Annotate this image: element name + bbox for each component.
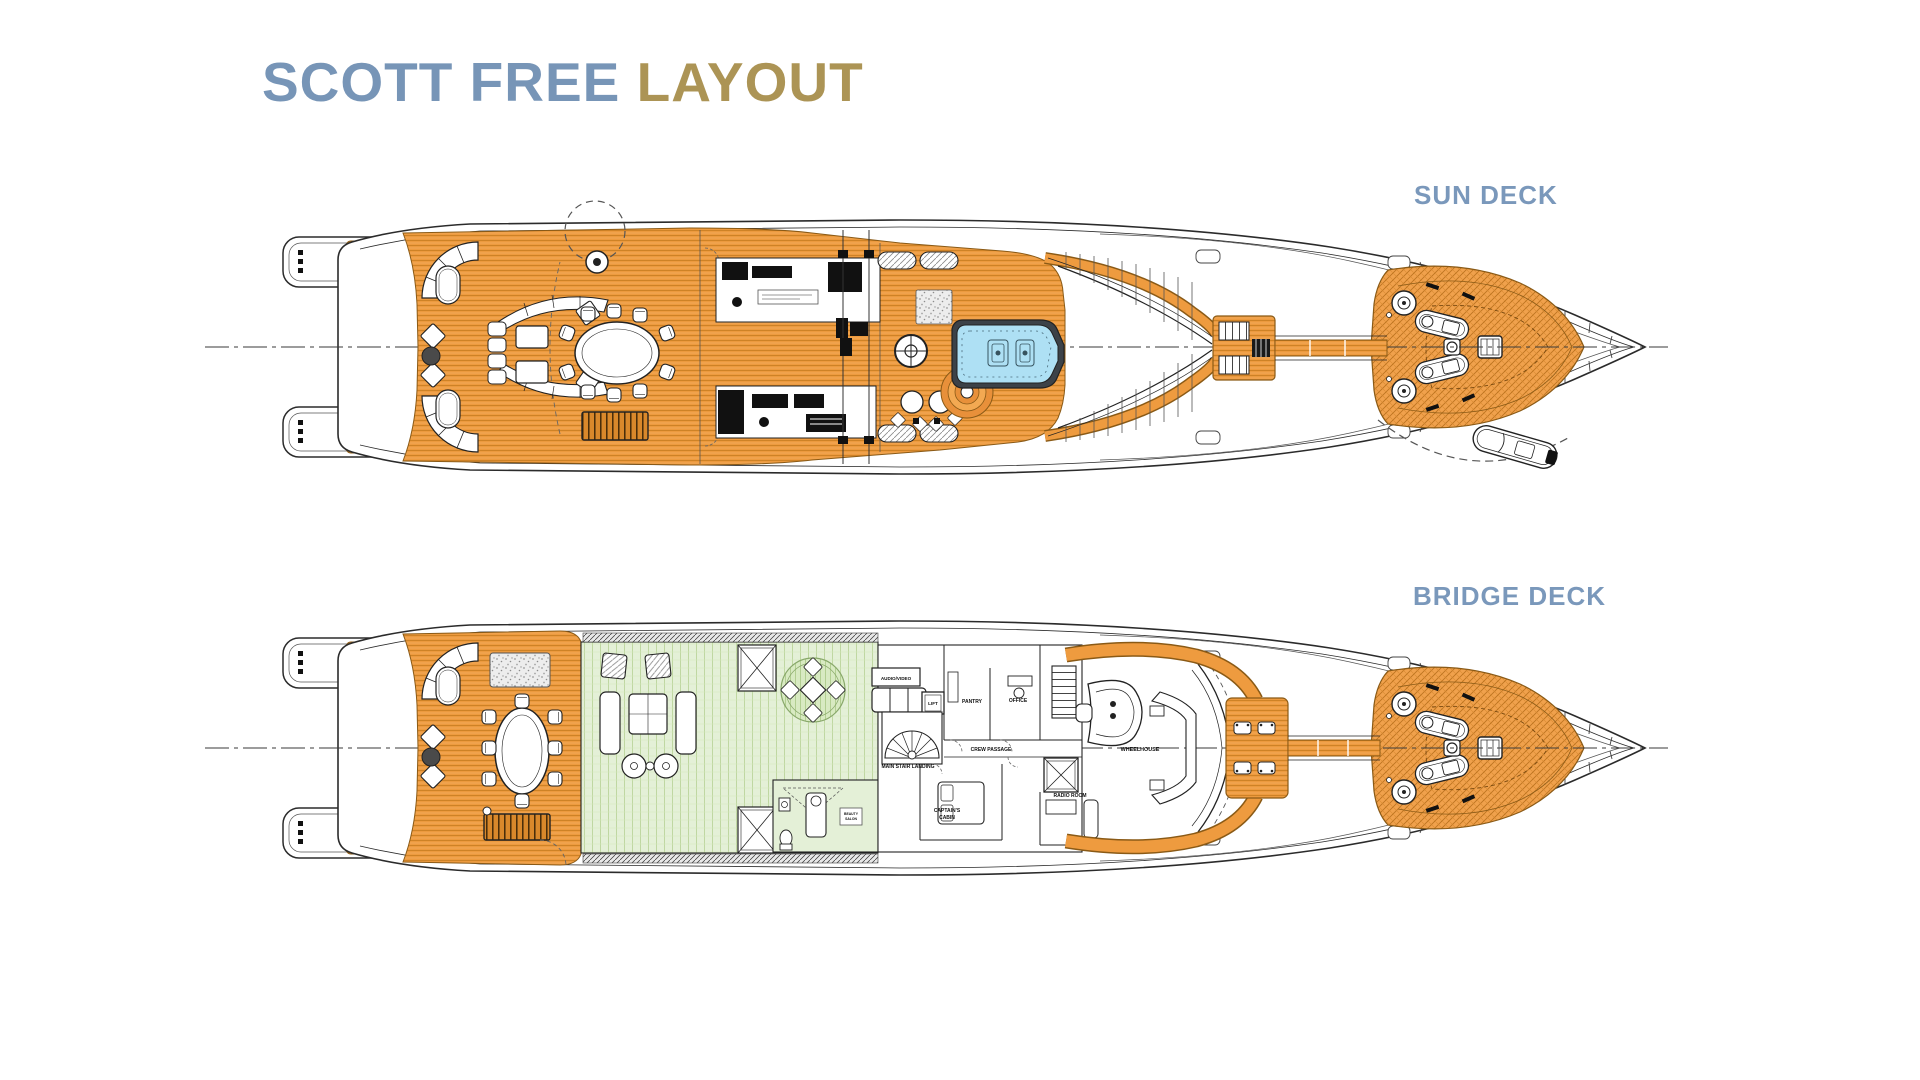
room-label-captains-cabin-1: CAPTAIN'S: [934, 808, 961, 814]
room-label-office: OFFICE: [1009, 698, 1028, 704]
yacht-name: SCOTT FREE: [262, 51, 620, 113]
room-label-pantry: PANTRY: [962, 699, 983, 705]
sunpad-lounger: [582, 412, 648, 440]
room-label-crew-passage: CREW PASSAGE: [971, 747, 1012, 753]
room-label-radio-room: RADIO ROOM: [1053, 793, 1086, 799]
sun-deck-plan: [205, 201, 1668, 474]
sun-deck-header: SUN DECK: [1414, 180, 1558, 211]
deck-plans-drawing: BEAUTY SALON: [0, 0, 1920, 1080]
aft-sunpad: [490, 653, 550, 687]
room-label-audio-video: AUDIO/VIDEO: [881, 676, 912, 681]
sky-lounge: BEAUTY SALON: [581, 633, 878, 863]
tender-boat: [1470, 423, 1560, 472]
room-label-beauty-2: SALON: [845, 817, 857, 821]
room-label-wheelhouse: WHEELHOUSE: [1121, 747, 1160, 753]
room-label-beauty-1: BEAUTY: [844, 812, 859, 816]
yacht-layout-page: SCOTT FREE LAYOUT SUN DECK BRIDGE DECK: [0, 0, 1920, 1080]
room-label-captains-cabin-2: CABIN: [939, 815, 955, 821]
beauty-salon: BEAUTY SALON: [773, 780, 878, 852]
room-label-main-stair-landing: MAIN STAIR LANDING: [882, 764, 935, 770]
room-label-lift: LIFT: [928, 701, 938, 706]
bridge-deck-plan: BEAUTY SALON: [205, 621, 1668, 1080]
round-table: [422, 347, 440, 365]
mosaic-pad: [916, 290, 952, 324]
aft-deck-bar: [484, 814, 550, 840]
deck-compass-feature: [895, 335, 927, 367]
bridge-deck-header: BRIDGE DECK: [1413, 581, 1606, 612]
pool: [952, 320, 1064, 388]
page-title: SCOTT FREE LAYOUT: [262, 50, 864, 114]
title-accent: LAYOUT: [637, 51, 864, 113]
